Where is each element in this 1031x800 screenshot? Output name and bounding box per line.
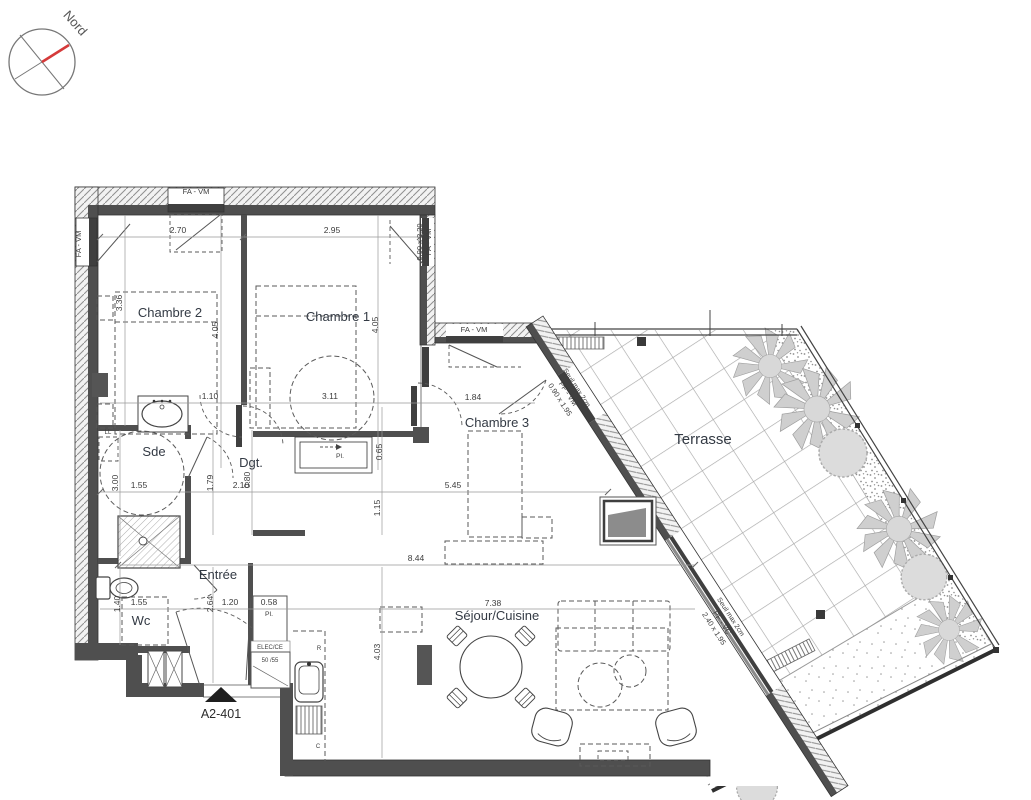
dimension-label: 0.80 — [242, 471, 252, 488]
room-label-terrasse: Terrasse — [674, 431, 732, 448]
room-label-wc: Wc — [132, 613, 151, 628]
dimension-label: 1.20 — [222, 597, 239, 607]
door-leaf — [236, 405, 242, 447]
dimension-label: 0.58 — [261, 597, 278, 607]
dimension-label: 3.36 — [114, 294, 124, 311]
room-label-sejour-cuisine: Séjour/Cuisine — [455, 608, 540, 623]
dimension-label: 1.55 — [131, 480, 148, 490]
door-leaf — [422, 347, 429, 387]
compass — [9, 29, 75, 95]
door-leaf — [411, 386, 417, 426]
dimension-label: 7.38 — [485, 598, 502, 608]
dimension-label: 4.05 — [370, 316, 380, 333]
room-label-sde: Sde — [142, 444, 165, 459]
room-label-chambre-1: Chambre 1 — [306, 309, 370, 324]
dimension-label: 2.95 — [324, 225, 341, 235]
sideboard — [600, 497, 656, 545]
closet-label: Pl. — [265, 611, 273, 618]
dimension-label: 3.11 — [322, 391, 338, 401]
dimension-label: 1.79 — [205, 474, 215, 491]
fridge-label: R — [317, 646, 322, 652]
shower — [118, 516, 180, 568]
terrace-drain — [816, 610, 825, 619]
dimension-label: 4.05 — [210, 321, 220, 338]
toilet — [96, 577, 138, 599]
room-label-chambre-2: Chambre 2 — [138, 305, 202, 320]
radiator — [92, 373, 108, 397]
dimension-label: 5.45 — [445, 480, 462, 490]
window-label: FA - VM — [424, 229, 433, 256]
washer-label: LL — [105, 430, 112, 436]
dimension-label: 4.03 — [372, 643, 382, 660]
dimension-label: 8.44 — [408, 553, 425, 563]
dimension-label: 1.84 — [465, 392, 482, 402]
dimension-label: 2.64 — [205, 595, 215, 612]
dimension-label: 2.70 — [170, 225, 187, 235]
room-label-dgt: Dgt. — [239, 455, 263, 470]
compass-label: Nord — [60, 7, 90, 38]
cooker-label: C — [316, 744, 321, 750]
room-label-chambre-3: Chambre 3 — [465, 415, 529, 430]
dimension-label: 1.55 — [131, 597, 148, 607]
drainboard — [296, 706, 322, 734]
dimension-label: 1.15 — [372, 499, 382, 516]
dimension-label: 3.00 — [110, 474, 120, 491]
window-label: FA - VM — [183, 187, 210, 196]
dining-set — [446, 625, 535, 708]
elec-label: ELEC/CE — [257, 645, 283, 651]
dimension-label: 1.10 — [202, 391, 219, 401]
room-label-entree: Entrée — [199, 567, 237, 582]
dimension-label: 1.40 — [112, 595, 122, 612]
window-size-label: 0.90 x 2.20 — [415, 223, 424, 260]
window-label: FA - VM — [461, 325, 488, 334]
north-arrow-icon — [42, 45, 69, 62]
closet-label: Pl. — [336, 453, 344, 460]
terrace-drain — [637, 337, 646, 346]
plan-code: A2-401 — [201, 707, 241, 721]
water-heater-label: 50 /55 — [262, 658, 279, 664]
window-label: FA - VM — [74, 231, 83, 258]
sink — [138, 396, 188, 432]
dimension-label: 0.65 — [374, 443, 384, 460]
bush-icon — [901, 554, 947, 600]
floor-plan-page: NordChambre 2Chambre 1Chambre 3SdeDgt.Wc… — [0, 0, 1031, 800]
floor-plan-svg: NordChambre 2Chambre 1Chambre 3SdeDgt.Wc… — [0, 0, 1031, 800]
bush-icon — [819, 429, 867, 477]
appliance — [417, 645, 432, 685]
